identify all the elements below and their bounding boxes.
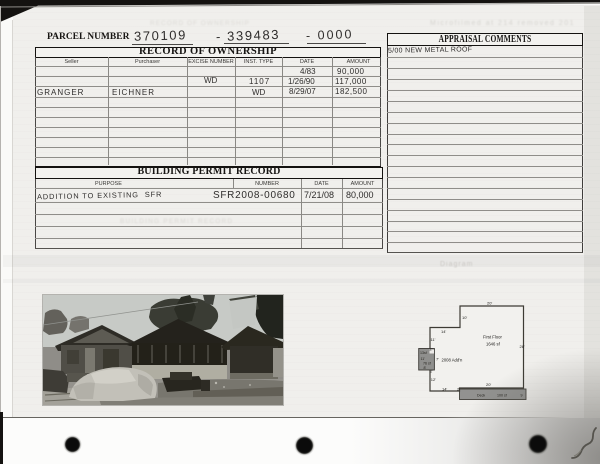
svg-text:10': 10' [462, 315, 467, 320]
svg-text:20': 20' [487, 301, 492, 306]
